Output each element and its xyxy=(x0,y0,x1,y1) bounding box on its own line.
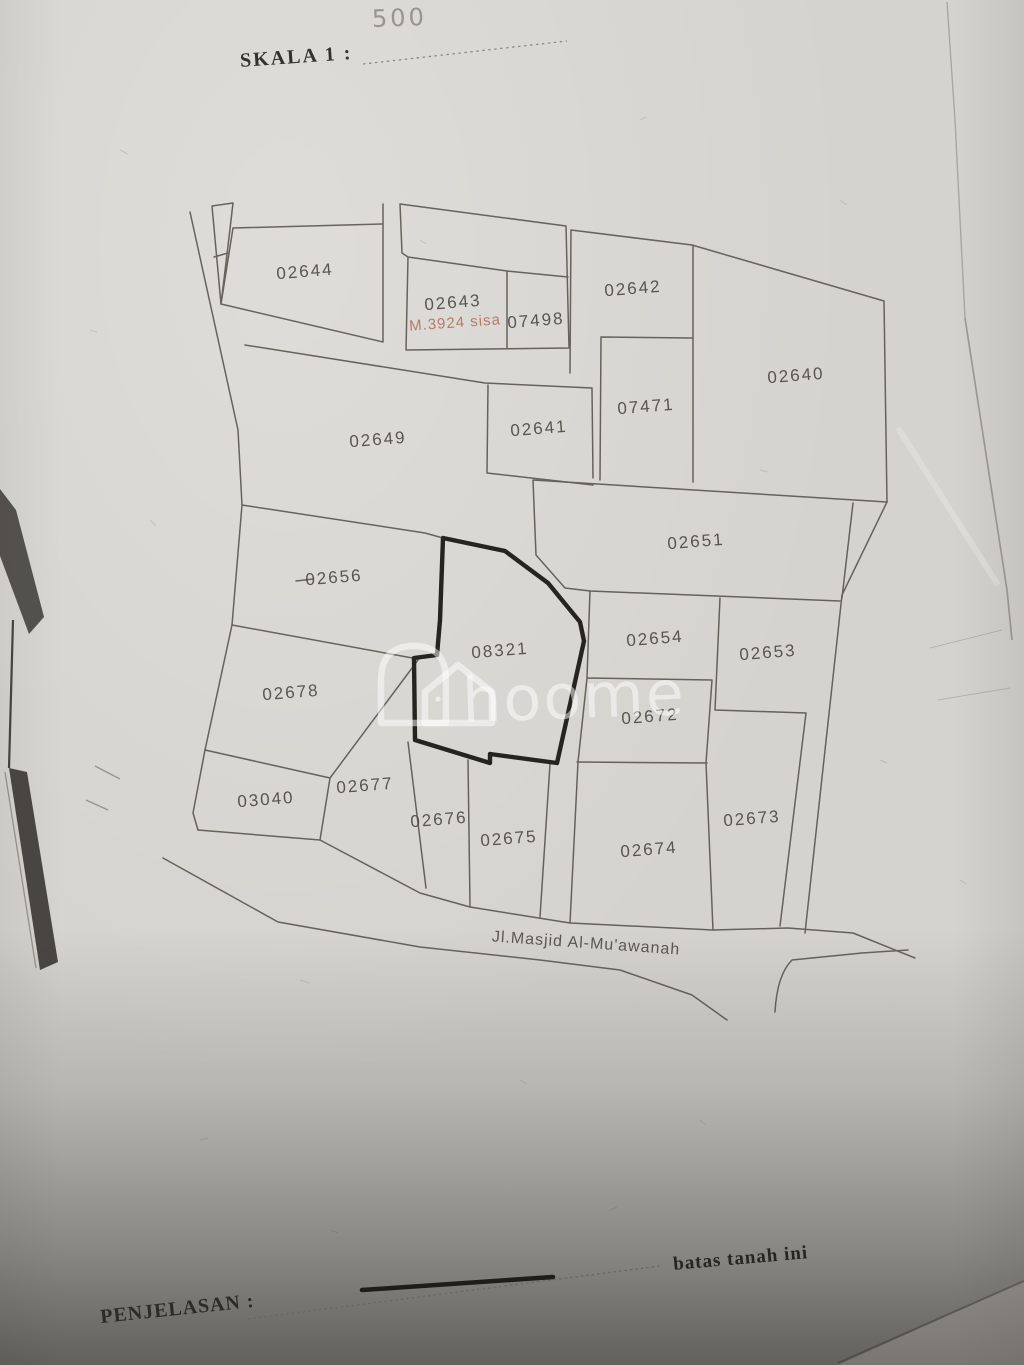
scale-dotted-line xyxy=(363,41,567,64)
scan-artifact-corner-fold xyxy=(838,1281,1024,1365)
legend-bold-line xyxy=(362,1277,553,1290)
penjelasan-dotted-line xyxy=(248,1266,660,1319)
scan-artifact-creases xyxy=(898,2,1012,700)
scanned-land-map-page: 500 SKALA 1 : 02644026430749802642026400… xyxy=(0,0,1024,1365)
watermark-text: hoome xyxy=(461,656,687,737)
scan-artifact-left-marks xyxy=(0,489,120,970)
scale-value-handwritten: 500 xyxy=(372,3,428,33)
